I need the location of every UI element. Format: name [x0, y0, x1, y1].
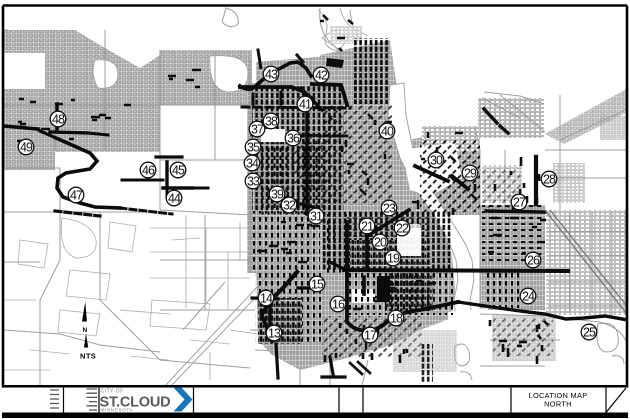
svg-text:14: 14	[260, 291, 273, 305]
svg-text:NTS: NTS	[80, 352, 96, 361]
svg-text:18: 18	[390, 311, 403, 325]
svg-text:43: 43	[265, 67, 278, 81]
svg-text:29: 29	[464, 166, 477, 180]
svg-text:25: 25	[583, 325, 596, 339]
svg-text:49: 49	[20, 140, 33, 154]
svg-text:N: N	[83, 327, 88, 334]
svg-text:38: 38	[265, 114, 278, 128]
svg-text:26: 26	[527, 253, 540, 267]
svg-text:39: 39	[271, 187, 284, 201]
svg-text:17: 17	[364, 328, 377, 342]
svg-text:MINNESOTA: MINNESOTA	[101, 408, 134, 414]
svg-text:15: 15	[311, 277, 324, 291]
svg-text:44: 44	[168, 191, 181, 205]
svg-text:46: 46	[142, 163, 155, 177]
svg-text:16: 16	[332, 297, 345, 311]
svg-text:28: 28	[543, 172, 556, 186]
svg-text:22: 22	[396, 221, 409, 235]
svg-text:47: 47	[70, 188, 83, 202]
svg-text:32: 32	[283, 198, 296, 212]
svg-text:24: 24	[522, 289, 535, 303]
svg-text:31: 31	[310, 209, 323, 223]
svg-text:36: 36	[287, 131, 300, 145]
svg-text:19: 19	[387, 251, 400, 265]
svg-text:35: 35	[247, 140, 260, 154]
svg-text:41: 41	[299, 97, 312, 111]
svg-text:NORTH: NORTH	[544, 400, 572, 409]
svg-text:34: 34	[246, 156, 259, 170]
svg-text:33: 33	[247, 174, 260, 188]
svg-text:20: 20	[374, 235, 387, 249]
svg-text:40: 40	[381, 124, 394, 138]
svg-text:27: 27	[513, 195, 526, 209]
svg-text:21: 21	[361, 219, 374, 233]
svg-text:42: 42	[315, 68, 328, 82]
svg-text:45: 45	[172, 163, 185, 177]
svg-text:23: 23	[383, 201, 396, 215]
svg-text:13: 13	[268, 326, 281, 340]
svg-text:30: 30	[430, 153, 443, 167]
svg-text:48: 48	[52, 112, 65, 126]
svg-text:37: 37	[251, 122, 264, 136]
